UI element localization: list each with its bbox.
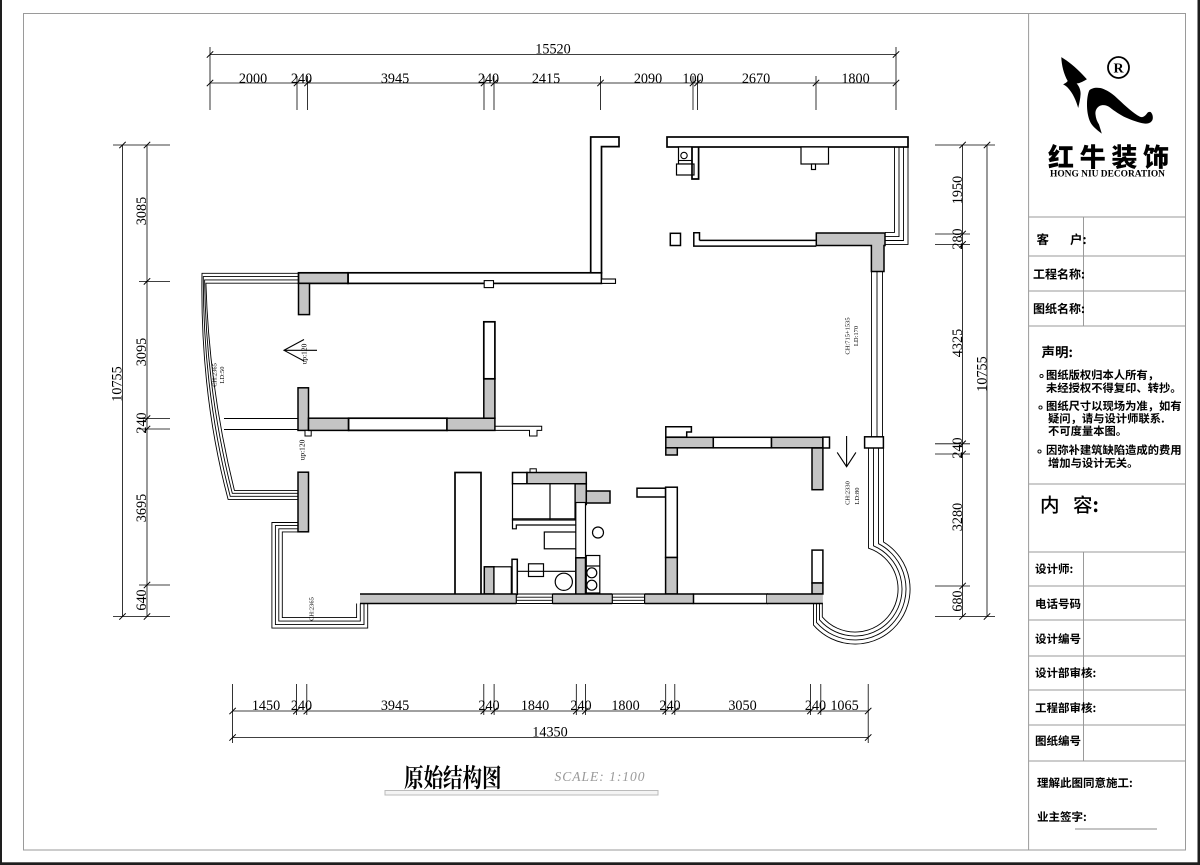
svg-text:1450: 1450 [252,698,280,714]
svg-text:HONG NIU DECORATION: HONG NIU DECORATION [1050,169,1165,179]
svg-text:100: 100 [682,71,703,87]
svg-text:1950: 1950 [950,176,966,204]
svg-text:2000: 2000 [239,71,267,87]
svg-text:240: 240 [478,698,499,714]
svg-text:240: 240 [805,698,826,714]
svg-text:640: 640 [134,589,150,610]
svg-text:4325: 4325 [950,329,966,357]
svg-text:3280: 3280 [950,503,966,531]
svg-text:3695: 3695 [134,494,150,522]
svg-text:up:120: up:120 [300,343,309,364]
svg-text:240: 240 [570,698,591,714]
svg-text:2090: 2090 [634,71,662,87]
svg-text:15520: 15520 [535,42,570,58]
svg-text:LD:50: LD:50 [219,367,226,384]
svg-text:14350: 14350 [532,724,567,740]
svg-text:1800: 1800 [611,698,639,714]
svg-text:CH:2365: CH:2365 [309,597,316,621]
svg-text:10755: 10755 [974,356,990,391]
svg-text:2415: 2415 [532,71,560,87]
svg-text:3050: 3050 [728,698,756,714]
svg-text:280: 280 [950,228,966,249]
svg-text:up:120: up:120 [298,439,307,460]
svg-text:3945: 3945 [381,698,409,714]
svg-text:240: 240 [291,71,312,87]
svg-text:10755: 10755 [109,366,125,401]
svg-text:CH:2365: CH:2365 [212,363,219,387]
svg-text:CH:2330: CH:2330 [844,481,851,505]
svg-text:1840: 1840 [521,698,549,714]
svg-text:240: 240 [478,71,499,87]
svg-text:680: 680 [950,590,966,611]
svg-text:240: 240 [950,437,966,458]
svg-text:240: 240 [659,698,680,714]
svg-text:R: R [1113,62,1124,77]
svg-text:SCALE: 1:100: SCALE: 1:100 [554,769,645,784]
svg-text:3095: 3095 [134,338,150,366]
svg-text:LD:170: LD:170 [853,326,860,346]
svg-text:3085: 3085 [134,197,150,225]
svg-text:LD:80: LD:80 [854,488,861,505]
svg-text:2670: 2670 [742,71,770,87]
svg-text:CH:715+1535: CH:715+1535 [845,317,852,354]
svg-text:1800: 1800 [841,71,869,87]
svg-text:1065: 1065 [830,698,858,714]
svg-text:240: 240 [134,412,150,433]
svg-text:240: 240 [291,698,312,714]
svg-text:3945: 3945 [381,71,409,87]
